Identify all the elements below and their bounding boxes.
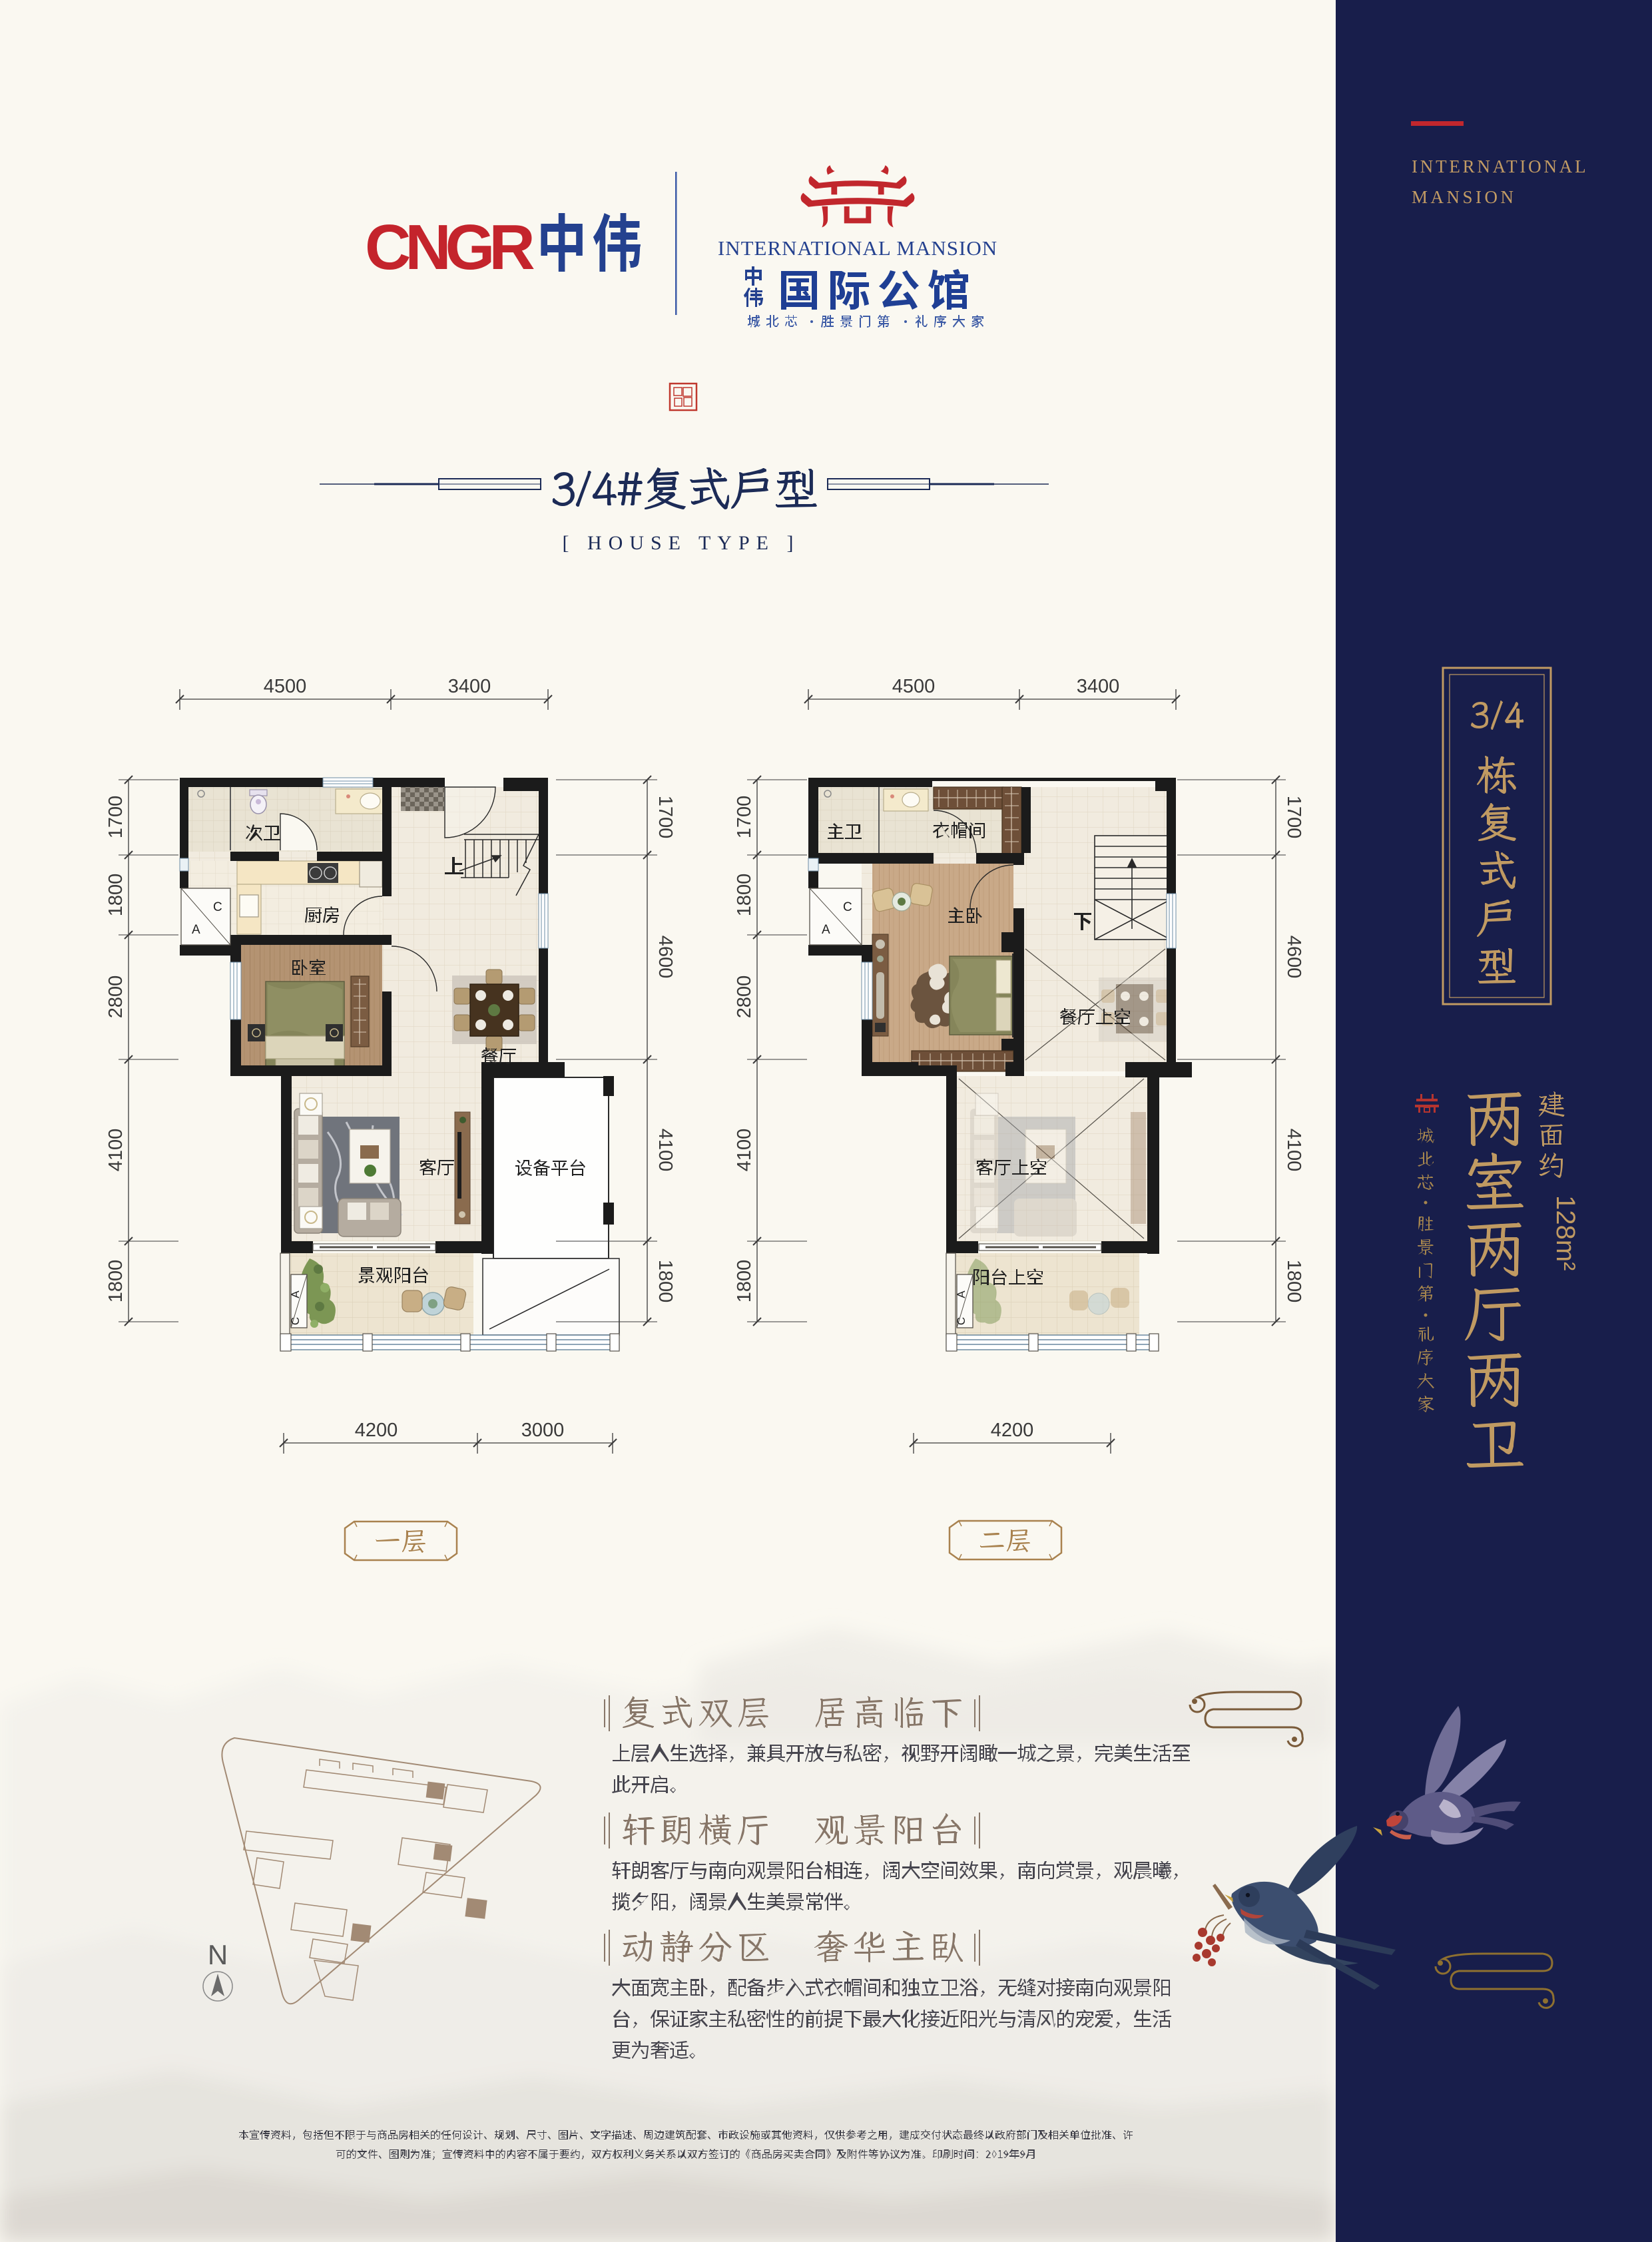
svg-text:4200: 4200: [355, 1420, 398, 1441]
svg-text:1800: 1800: [105, 1260, 127, 1303]
svg-text:N: N: [208, 1939, 228, 1970]
svg-text:1800: 1800: [734, 874, 755, 917]
svg-text:4500: 4500: [264, 676, 307, 697]
svg-text:1800: 1800: [1283, 1260, 1304, 1303]
svg-text:3400: 3400: [1077, 676, 1120, 697]
svg-text:C: C: [213, 900, 222, 914]
svg-text:1700: 1700: [655, 796, 676, 839]
svg-text:4600: 4600: [1283, 936, 1304, 979]
svg-text:A: A: [822, 923, 830, 937]
svg-text:2800: 2800: [734, 976, 755, 1019]
svg-text:INTERNATIONAL: INTERNATIONAL: [1412, 156, 1588, 176]
svg-text:C: C: [955, 1317, 967, 1325]
svg-text:4100: 4100: [655, 1129, 676, 1172]
svg-text:A: A: [192, 923, 200, 937]
svg-text:1700: 1700: [734, 796, 755, 839]
svg-text:4100: 4100: [1283, 1129, 1304, 1172]
svg-text:C: C: [289, 1317, 302, 1325]
svg-text:3400: 3400: [448, 676, 491, 697]
svg-text:4100: 4100: [734, 1129, 755, 1172]
svg-text:1800: 1800: [105, 874, 127, 917]
svg-text:4600: 4600: [655, 936, 676, 979]
svg-text:2800: 2800: [105, 976, 127, 1019]
svg-text:[ HOUSE TYPE ]: [ HOUSE TYPE ]: [563, 532, 800, 554]
svg-text:1700: 1700: [105, 796, 127, 839]
svg-text:CNGR: CNGR: [365, 212, 534, 283]
svg-text:MANSION: MANSION: [1412, 187, 1517, 207]
svg-text:4500: 4500: [892, 676, 936, 697]
svg-text:4200: 4200: [991, 1420, 1034, 1441]
svg-text:1700: 1700: [1283, 796, 1304, 839]
svg-text:1800: 1800: [734, 1260, 755, 1303]
svg-text:3000: 3000: [521, 1420, 565, 1441]
svg-text:C: C: [843, 900, 852, 914]
svg-text:A: A: [955, 1290, 967, 1298]
svg-text:128m²: 128m²: [1551, 1195, 1580, 1270]
svg-text:1800: 1800: [655, 1260, 676, 1303]
svg-text:INTERNATIONAL MANSION: INTERNATIONAL MANSION: [718, 236, 997, 260]
svg-text:A: A: [289, 1290, 302, 1298]
svg-text:4100: 4100: [105, 1129, 127, 1172]
